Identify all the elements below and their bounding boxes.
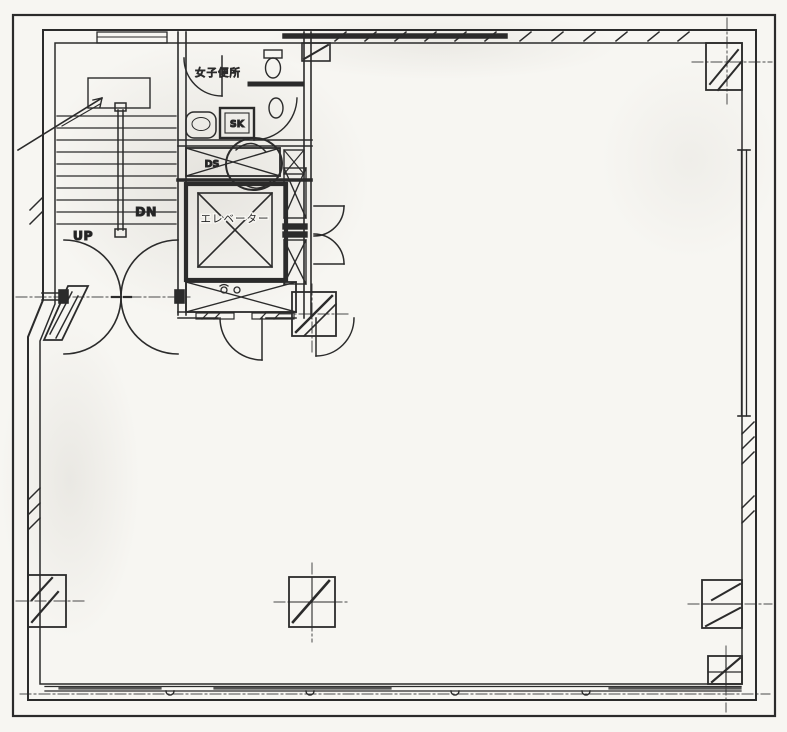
label-dn: DN: [135, 204, 157, 219]
elevator-shaft: エレベーター: [186, 184, 286, 280]
window-right: [738, 150, 750, 416]
columns: [28, 43, 742, 684]
column-right-middle: [702, 580, 742, 628]
drawing-frame: [13, 15, 775, 716]
column-bottom-right: [708, 656, 742, 684]
column-interior: [289, 577, 335, 627]
label-ds: DS: [205, 159, 220, 170]
column-top-right: [706, 43, 742, 90]
floor-plan-svg: UP DN 女子便所: [0, 0, 787, 732]
floor-plan-sheet: UP DN 女子便所: [0, 0, 787, 732]
grid-centerlines: [16, 18, 772, 712]
label-elevator: エレベーター: [201, 213, 270, 225]
label-womens-toilet: 女子便所: [195, 66, 241, 79]
toilet-fixture: [264, 50, 282, 78]
slop-sink: SK: [220, 108, 254, 138]
shaft-access-doors: [314, 206, 344, 264]
label-sk: SK: [230, 119, 245, 130]
column-core-top: [302, 43, 330, 61]
stairwell: UP DN: [18, 78, 176, 243]
womens-toilet-room: 女子便所 SK: [184, 50, 302, 140]
stair-rail: [115, 103, 126, 237]
wash-basin: [186, 112, 216, 138]
shaft-below-elevator: [186, 282, 296, 319]
stair-break-line: [18, 98, 102, 150]
wall-hatching: [28, 32, 754, 530]
core-doors: [220, 318, 354, 360]
stair-treads: [57, 116, 176, 224]
toilet-fixture-2: [254, 98, 297, 140]
exterior-walls: [28, 30, 756, 700]
